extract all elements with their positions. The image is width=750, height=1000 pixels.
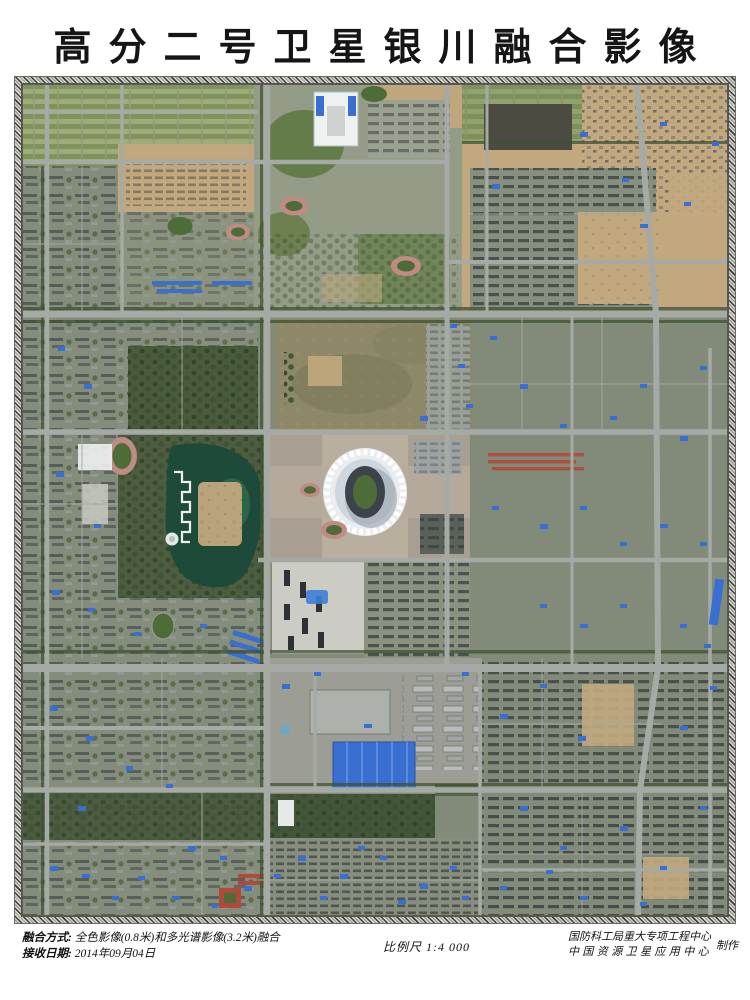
stadium-plaza — [267, 430, 470, 558]
producer-lines: 国防科工局重大专项工程中心 中国资源卫星应用中心 — [568, 930, 712, 960]
map-frame — [14, 76, 736, 924]
receive-date-label: 接收日期: — [22, 948, 72, 960]
fusion-method-line: 融合方式: 全色影像(0.8米)和多光谱影像(3.2米)融合 — [22, 930, 280, 946]
university-campus — [254, 84, 462, 314]
receive-date-line: 接收日期: 2014年09月04日 — [22, 946, 280, 962]
page-title: 高分二号卫星银川融合影像 — [0, 16, 750, 71]
receive-date-value: 2014年09月04日 — [75, 948, 156, 960]
construction-nw — [118, 144, 254, 314]
red-roof-rows — [488, 453, 584, 470]
producer-block: 国防科工局重大专项工程中心 中国资源卫星应用中心 制作 — [568, 930, 738, 960]
footer: 融合方式: 全色影像(0.8米)和多光谱影像(3.2米)融合 接收日期: 201… — [0, 926, 750, 1000]
satellite-image — [22, 84, 728, 916]
producer-line-2: 中国资源卫星应用中心 — [568, 945, 712, 960]
fusion-method-label: 融合方式: — [22, 932, 72, 944]
producer-line-1: 国防科工局重大专项工程中心 — [568, 930, 712, 945]
fusion-method-value: 全色影像(0.8米)和多光谱影像(3.2米)融合 — [75, 932, 280, 944]
blue-factory — [333, 742, 415, 788]
map-sheet: 高分二号卫星银川融合影像 — [0, 0, 750, 1000]
image-metadata: 融合方式: 全色影像(0.8米)和多光谱影像(3.2米)融合 接收日期: 201… — [22, 930, 280, 962]
sand-village-ne — [462, 84, 728, 314]
bare-land-center — [276, 320, 472, 432]
scale-text: 比例尺 1:4 000 — [383, 938, 470, 955]
producer-suffix: 制作 — [716, 937, 738, 953]
stadium-field — [353, 475, 377, 509]
